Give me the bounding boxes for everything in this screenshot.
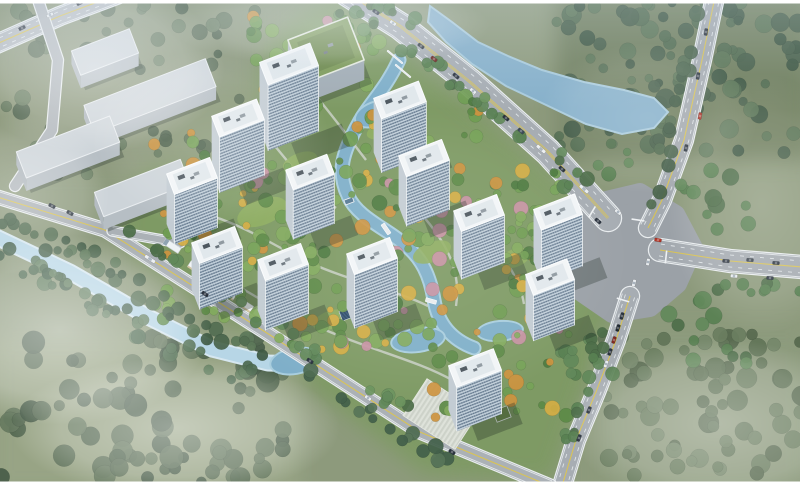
tree — [428, 438, 444, 454]
tree — [657, 332, 671, 346]
tree — [646, 199, 656, 209]
tree — [214, 334, 230, 350]
tree — [588, 353, 598, 363]
atmospheric-veil — [0, 0, 800, 110]
tree — [566, 368, 577, 379]
tree — [385, 424, 396, 435]
veil — [0, 0, 800, 110]
tree — [209, 306, 218, 315]
tree — [368, 414, 377, 423]
tree — [151, 244, 165, 258]
tree — [545, 401, 560, 416]
tree — [123, 225, 136, 238]
tree — [696, 317, 709, 330]
tree — [641, 338, 652, 349]
tree — [431, 453, 446, 468]
tree — [431, 413, 440, 422]
frame-bottom — [0, 482, 800, 485]
tree — [367, 403, 377, 413]
tree — [397, 435, 408, 446]
aerial-scene — [0, 0, 800, 485]
tree — [354, 406, 366, 418]
frame-top — [0, 0, 800, 4]
tree — [168, 254, 179, 265]
tree — [661, 306, 678, 323]
aerial-render-image — [0, 0, 800, 485]
tree — [184, 246, 191, 253]
